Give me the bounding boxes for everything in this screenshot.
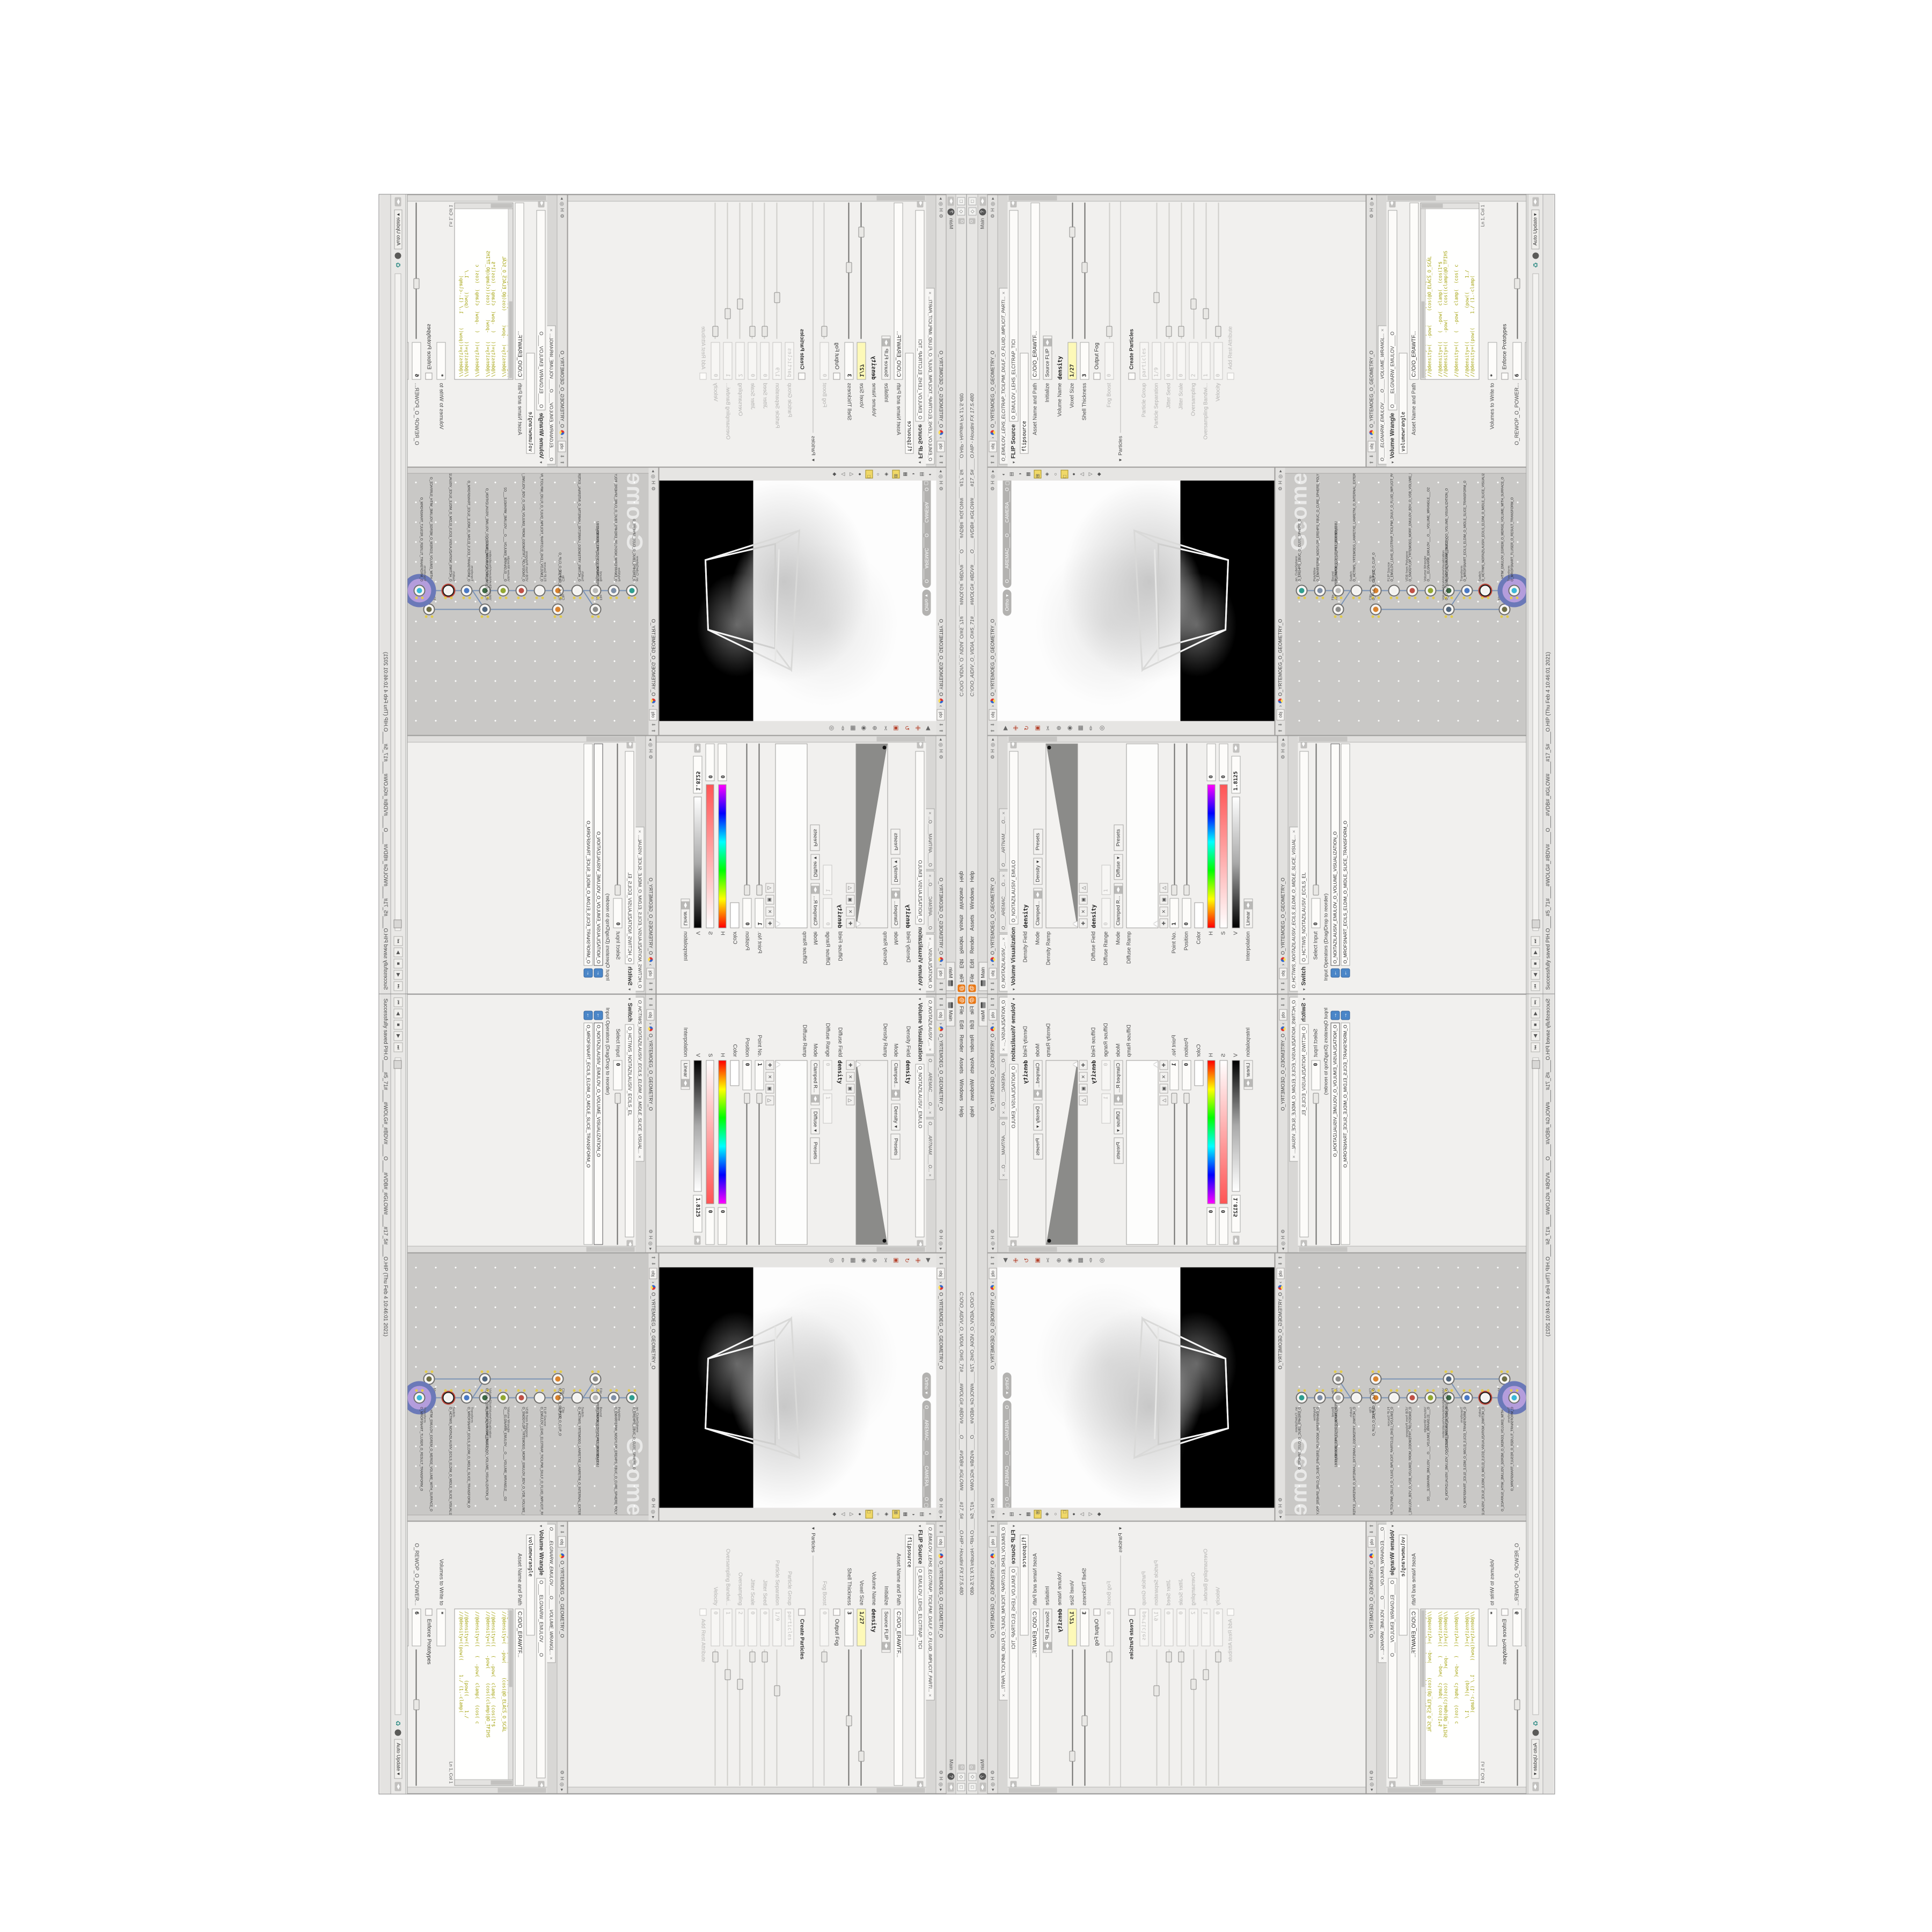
window-button[interactable]: □ xyxy=(957,197,965,205)
close-tab-icon[interactable]: ✕ xyxy=(1002,1111,1006,1114)
h-slider[interactable] xyxy=(718,784,726,928)
network-node[interactable] xyxy=(608,584,619,596)
nav-up-icon[interactable]: ⬆ xyxy=(559,460,565,464)
param-value[interactable]: density xyxy=(837,904,843,928)
context-chip[interactable]: obj xyxy=(989,968,997,979)
param-value[interactable]: density xyxy=(905,904,911,928)
houdini-h-icon[interactable]: H xyxy=(1368,208,1374,211)
param-checkbox[interactable] xyxy=(1128,372,1135,379)
param-slider[interactable] xyxy=(858,1649,865,1785)
node-flag-icon[interactable] xyxy=(480,1370,483,1373)
ramp-widget[interactable]: ✚✕▣△ xyxy=(846,1060,888,1245)
network-node[interactable] xyxy=(442,584,454,596)
close-tab-icon[interactable]: ✕ xyxy=(927,1111,931,1114)
node-flag-icon[interactable] xyxy=(462,596,465,599)
network-node[interactable] xyxy=(1296,1392,1307,1403)
nav-down-icon[interactable]: ⬇ xyxy=(1277,722,1283,727)
node-flag-icon[interactable] xyxy=(1408,1389,1410,1392)
menu-item-file[interactable]: File xyxy=(969,1006,975,1014)
node-flag-icon[interactable] xyxy=(450,596,452,599)
camera-pill[interactable]: O____AREMAC____O____CAMERA____O▢ xyxy=(1002,1400,1011,1507)
node-flag-icon[interactable] xyxy=(480,1389,483,1392)
magnifier-icon[interactable]: ◎ xyxy=(990,743,996,747)
pane-scroll-chip[interactable]: ◀▶ xyxy=(948,1782,954,1791)
playbar-transport[interactable]: ⏮◀■▶⏭ xyxy=(393,997,402,1052)
transport-button[interactable]: ■ xyxy=(393,958,402,968)
node-flag-icon[interactable] xyxy=(523,596,525,599)
node-path-field[interactable] xyxy=(625,751,634,964)
node-name-field[interactable] xyxy=(1399,1534,1407,1635)
nav-down-icon[interactable]: ⬇ xyxy=(990,1262,996,1266)
menu-item-help[interactable]: Help xyxy=(969,871,975,882)
param-field[interactable]: C:/O/O_ERAWTF... xyxy=(1409,202,1418,379)
node-flag-icon[interactable] xyxy=(462,1389,465,1392)
pane-scrollbar[interactable] xyxy=(656,736,926,742)
magnifier-icon[interactable]: ◎ xyxy=(559,1782,565,1787)
node-flag-icon[interactable] xyxy=(1450,1389,1453,1392)
node-flag-icon[interactable] xyxy=(591,615,594,618)
param-slider[interactable] xyxy=(1312,1093,1319,1245)
network-node[interactable] xyxy=(479,603,491,615)
code-hscrollbar[interactable] xyxy=(508,1609,513,1780)
close-tab-icon[interactable]: ✕ xyxy=(1002,811,1006,815)
frame-slider[interactable] xyxy=(395,1057,401,1715)
close-tab-icon[interactable]: ✕ xyxy=(1381,328,1385,332)
nav-down-icon[interactable]: ⬇ xyxy=(559,454,565,458)
node-flag-icon[interactable] xyxy=(535,1389,538,1392)
pane-scrollbar[interactable] xyxy=(1007,195,1365,201)
magnifier-icon[interactable]: ◎ xyxy=(938,1782,944,1787)
ramp-handle[interactable] xyxy=(856,1062,860,1067)
param-field[interactable]: 0 xyxy=(613,1060,622,1090)
node-flag-icon[interactable] xyxy=(1426,1389,1429,1392)
cook-mode-icon[interactable] xyxy=(395,1729,401,1736)
transport-button[interactable]: ⏮ xyxy=(393,997,402,1007)
pane-tab[interactable]: O____AREMAC____O...✕ xyxy=(926,1055,934,1117)
node-flag-icon[interactable] xyxy=(579,596,581,599)
desktop-tab-main[interactable]: Main xyxy=(947,997,955,1026)
menu-item-assets[interactable]: Assets xyxy=(969,914,975,931)
reorder-left-icon[interactable]: ← xyxy=(1341,968,1350,977)
node-name-field[interactable] xyxy=(526,353,535,453)
viewport-canvas[interactable]: Ortho▾O____AREMAC____O____CAMERA____O▢ xyxy=(659,480,936,721)
desktop-tab-main[interactable]: Main xyxy=(978,997,987,1026)
context-chip[interactable]: obj xyxy=(937,709,945,720)
node-flag-icon[interactable] xyxy=(1358,596,1360,599)
op-tool-icon[interactable]: ⊕ xyxy=(871,1257,878,1262)
node-flag-icon[interactable] xyxy=(1389,596,1392,599)
houdini-h-icon[interactable]: H xyxy=(938,749,943,752)
param-checkbox[interactable] xyxy=(1128,1608,1135,1615)
color-swatch[interactable] xyxy=(1194,1060,1203,1086)
param-slider[interactable] xyxy=(743,743,750,895)
pane-tab[interactable]: O_HCTIWS_NOITAZILAUSIV_ECILS_ELDIM_O_MID… xyxy=(1289,826,1298,991)
network-node[interactable] xyxy=(1332,584,1344,596)
param-value[interactable]: density xyxy=(905,1060,911,1084)
close-tab-icon[interactable]: ✕ xyxy=(1292,1155,1296,1158)
section-separator[interactable]: ▾Particles xyxy=(1117,200,1123,461)
display-tool-icon[interactable]: ⊞ xyxy=(1034,470,1041,478)
node-path-field[interactable] xyxy=(537,1578,546,1778)
transport-button[interactable]: ⏭ xyxy=(1531,936,1540,946)
network-node[interactable] xyxy=(413,584,425,596)
ramp-marker-button[interactable]: △ xyxy=(846,1095,854,1105)
houdini-h-icon[interactable]: H xyxy=(938,1504,943,1507)
slider-handle[interactable] xyxy=(858,226,864,237)
nav-down-icon[interactable]: ⬇ xyxy=(648,981,654,985)
param-slider[interactable] xyxy=(756,1093,763,1245)
op-tool-icon[interactable]: ✏ xyxy=(1087,725,1094,730)
collapse-icon[interactable]: ▾ xyxy=(1301,998,1306,1000)
gear-icon[interactable]: ⚙ xyxy=(1280,755,1286,759)
slider-handle[interactable] xyxy=(1514,278,1520,289)
input-operator-value[interactable]: O_NOITAZILAUSIV_EMULOV_O_VOLUME_VISUALIZ… xyxy=(1330,1022,1340,1245)
network-node[interactable] xyxy=(1350,584,1362,596)
context-chip[interactable]: obj xyxy=(1279,1009,1287,1020)
node-flag-icon[interactable] xyxy=(415,1389,418,1392)
network-node[interactable] xyxy=(533,1392,545,1403)
slider-handle[interactable] xyxy=(413,1699,419,1710)
node-flag-icon[interactable] xyxy=(430,1370,433,1373)
network-node[interactable] xyxy=(479,1373,491,1385)
node-flag-icon[interactable] xyxy=(1395,596,1398,599)
gear-icon[interactable]: ⚙ xyxy=(990,1770,996,1774)
op-tool-icon[interactable]: ✙ xyxy=(914,725,921,730)
context-chip[interactable]: obj xyxy=(1367,1536,1375,1547)
node-flag-icon[interactable] xyxy=(1468,596,1471,599)
pane-tab[interactable]: O____ELGNARW_EMULOV____O____VOLUME_WRANG… xyxy=(1378,325,1386,464)
context-chip[interactable]: obj xyxy=(649,709,657,720)
node-flag-icon[interactable] xyxy=(1352,596,1355,599)
add-point-button[interactable]: ✚ xyxy=(1159,1060,1168,1070)
reorder-left-icon[interactable]: ← xyxy=(594,1011,603,1020)
op-tool-icon[interactable]: ◉ xyxy=(1066,725,1073,730)
display-tool-icon[interactable]: ▤ xyxy=(1008,1512,1014,1517)
param-value[interactable]: density xyxy=(1091,1060,1097,1084)
display-tool-icon[interactable]: □ xyxy=(865,470,873,478)
display-tool-icon[interactable]: ◐ xyxy=(1000,1512,1006,1515)
pane-tab[interactable]: O____ELGNARW_EMULOV____O____VOLUME_WRANG… xyxy=(547,325,555,464)
context-chip[interactable]: obj xyxy=(1279,968,1287,979)
network-node[interactable] xyxy=(515,584,527,596)
display-tool-icon[interactable]: ▦ xyxy=(1025,1512,1031,1517)
magnifier-icon[interactable]: ◎ xyxy=(1277,1510,1283,1514)
gear-icon[interactable]: ⚙ xyxy=(1368,1770,1374,1774)
code-hscrollbar[interactable] xyxy=(508,208,513,379)
node-flag-icon[interactable] xyxy=(559,615,562,618)
param-slider[interactable] xyxy=(1069,1649,1075,1785)
collapse-icon[interactable]: ▾ xyxy=(1390,1525,1395,1527)
play-icon[interactable]: ▸ xyxy=(1280,738,1286,741)
node-path-field[interactable] xyxy=(1388,1578,1397,1778)
close-tab-icon[interactable]: ✕ xyxy=(548,1656,552,1659)
pane-scrollbar[interactable] xyxy=(1298,1246,1526,1252)
node-flag-icon[interactable] xyxy=(415,596,418,599)
param-slider[interactable] xyxy=(743,1093,750,1245)
magnifier-icon[interactable]: ◎ xyxy=(938,1241,944,1246)
ramp-point[interactable] xyxy=(1047,1239,1051,1242)
frame-slider-handle[interactable] xyxy=(1532,1060,1540,1069)
menu-item-render[interactable]: Render xyxy=(969,936,975,954)
context-chip[interactable]: obj xyxy=(989,1268,997,1279)
param-field[interactable]: 6 xyxy=(1512,342,1521,379)
window-buttons[interactable]: ◇□ xyxy=(968,1773,976,1791)
magnifier-icon[interactable]: ◎ xyxy=(1277,474,1283,479)
node-flag-icon[interactable] xyxy=(1444,615,1447,618)
param-slider[interactable] xyxy=(1183,743,1190,895)
ramp-target-dropdown[interactable]: Density▾ xyxy=(891,1103,900,1130)
v-slider[interactable] xyxy=(693,1060,701,1191)
display-tool-icon[interactable]: ⊞ xyxy=(892,1510,899,1518)
add-point-button[interactable]: ✚ xyxy=(1079,1060,1087,1070)
help-icon[interactable]: ? xyxy=(947,208,954,215)
nav-up-icon[interactable]: ⬆ xyxy=(559,1524,565,1528)
op-tool-icon[interactable]: ▶ xyxy=(1001,726,1008,730)
houdini-h-icon[interactable]: H xyxy=(1277,1504,1283,1507)
menu-item-windows[interactable]: Windows xyxy=(969,887,975,909)
color-swatch[interactable] xyxy=(730,1060,739,1086)
h-slider[interactable] xyxy=(718,1060,726,1204)
param-dropdown[interactable]: Source FLIP◀▶ xyxy=(881,1608,890,1652)
network-scrollbar[interactable] xyxy=(407,467,648,473)
param-slider[interactable] xyxy=(413,202,420,339)
magnifier-icon[interactable]: ◎ xyxy=(990,474,996,479)
display-tool-icon[interactable]: ○ xyxy=(1052,1512,1058,1515)
network-node[interactable] xyxy=(460,1392,472,1403)
node-name-field[interactable] xyxy=(905,353,913,453)
display-tool-icon[interactable]: ◐ xyxy=(1000,472,1006,475)
param-slider[interactable] xyxy=(1069,202,1075,339)
close-tab-icon[interactable]: ✕ xyxy=(548,328,552,332)
op-tool-icon[interactable]: ⊕ xyxy=(1055,1257,1062,1262)
ramp-box-button[interactable]: ▣ xyxy=(846,895,854,904)
context-chip[interactable]: obj xyxy=(649,1268,657,1279)
network-node[interactable] xyxy=(1314,584,1326,596)
param-field[interactable]: C:/O/O_ERAWTF... xyxy=(1409,1608,1418,1785)
node-flag-icon[interactable] xyxy=(499,596,501,599)
menu-item-help[interactable]: Help xyxy=(958,871,964,882)
node-name-field[interactable] xyxy=(905,1534,913,1635)
houdini-h-icon[interactable]: H xyxy=(648,749,653,752)
collapse-icon[interactable]: ▾ xyxy=(1301,988,1306,990)
display-tool-icon[interactable]: ▤ xyxy=(919,472,925,477)
param-field[interactable]: 0 xyxy=(742,1060,751,1090)
magnifier-icon[interactable]: ◎ xyxy=(648,743,654,747)
gear-icon[interactable]: ⚙ xyxy=(938,214,944,218)
pane-scrollbar[interactable] xyxy=(568,195,926,201)
gear-icon[interactable]: ⚙ xyxy=(990,1229,996,1233)
node-flag-icon[interactable] xyxy=(1516,1389,1518,1392)
slider-handle[interactable] xyxy=(1069,1751,1075,1761)
nav-down-icon[interactable]: ⬇ xyxy=(1368,454,1374,458)
ramp-widget[interactable]: ✚✕▣△ xyxy=(1045,1060,1087,1245)
network-node[interactable] xyxy=(626,584,638,596)
network-node[interactable] xyxy=(1406,1392,1418,1403)
pane-scroll-chip[interactable]: ◀▶ xyxy=(948,196,954,206)
node-flag-icon[interactable] xyxy=(504,596,507,599)
display-tool-icon[interactable]: ◆ xyxy=(1096,472,1102,476)
op-tool-icon[interactable]: ✏ xyxy=(839,1257,846,1262)
ramp-marker-button[interactable]: △ xyxy=(1159,1095,1168,1105)
param-field[interactable]: * xyxy=(436,342,445,379)
pane-tab[interactable]: O____AREMAC____O...✕ xyxy=(999,1055,1007,1117)
gear-icon[interactable]: ⚙ xyxy=(559,1770,565,1774)
network-node[interactable] xyxy=(589,1392,601,1403)
s-slider[interactable] xyxy=(706,784,714,928)
ramp-widget[interactable]: ✚✕▣△ xyxy=(1126,743,1168,928)
param-field[interactable]: 6 xyxy=(412,342,421,379)
param-field[interactable]: 32 xyxy=(407,1608,408,1646)
param-checkbox[interactable] xyxy=(798,372,805,379)
transport-button[interactable]: ■ xyxy=(1531,958,1540,968)
window-buttons[interactable]: ◇□ xyxy=(968,197,976,215)
presets-button[interactable]: Presets xyxy=(891,829,901,854)
node-name-field[interactable] xyxy=(1020,353,1028,453)
collapse-icon[interactable]: ▾ xyxy=(539,1525,544,1527)
network-node[interactable] xyxy=(589,1373,601,1385)
node-flag-icon[interactable] xyxy=(615,596,618,599)
context-chip[interactable]: obj xyxy=(558,441,566,452)
mode-dropdown[interactable]: Clamped R...◀▶ xyxy=(1114,883,1123,928)
section-separator[interactable]: ▾Particles xyxy=(1117,1527,1123,1788)
menu-item-edit[interactable]: Edit xyxy=(969,1020,975,1029)
param-value[interactable]: density xyxy=(1091,904,1097,928)
hsv-value-field[interactable]: 1.8125 xyxy=(693,1195,702,1232)
collapse-icon[interactable]: ▾ xyxy=(918,998,923,1000)
transport-button[interactable]: ▶ xyxy=(1531,947,1540,957)
code-vscrollbar[interactable] xyxy=(1421,203,1479,209)
node-flag-icon[interactable] xyxy=(1481,596,1483,599)
display-tool-icon[interactable]: ◐ xyxy=(927,1512,933,1515)
param-slider[interactable] xyxy=(1513,202,1520,339)
window-buttons[interactable]: ◇□ xyxy=(957,197,965,215)
gear-icon[interactable]: ⚙ xyxy=(648,1229,654,1233)
pane-scrollbar[interactable] xyxy=(568,1787,926,1793)
menu-item-file[interactable]: File xyxy=(969,974,975,982)
param-field[interactable]: C:/O/O_ERAWTF... xyxy=(515,1608,524,1785)
close-tab-icon[interactable]: ✕ xyxy=(1002,874,1006,877)
node-flag-icon[interactable] xyxy=(468,596,471,599)
param-slider[interactable] xyxy=(1513,1649,1520,1785)
play-icon[interactable]: ▸ xyxy=(990,1247,996,1250)
ramp-point[interactable] xyxy=(1047,745,1051,749)
network-node[interactable] xyxy=(589,584,601,596)
pane-scrollbar[interactable] xyxy=(656,1246,926,1252)
mode-dropdown[interactable]: Clamped R...◀▶ xyxy=(810,883,819,928)
h-slider[interactable] xyxy=(1207,1060,1215,1204)
gear-icon[interactable]: ⚙ xyxy=(938,1229,944,1233)
op-tool-icon[interactable]: ▦ xyxy=(850,725,857,730)
node-flag-icon[interactable] xyxy=(1500,1370,1503,1373)
pane-tab[interactable]: O____ELGNARW_EMULOV____O____VOLUME_WRANG… xyxy=(547,1524,555,1663)
presets-button[interactable]: Presets xyxy=(810,1137,820,1163)
houdini-h-icon[interactable]: H xyxy=(938,1776,943,1780)
network-node[interactable] xyxy=(460,584,472,596)
collapse-icon[interactable]: ▾ xyxy=(539,461,544,463)
param-field[interactable]: 1/27 xyxy=(857,342,866,379)
hsv-value-field[interactable]: 0 xyxy=(1219,743,1228,781)
ramp-box-button[interactable]: ▣ xyxy=(765,895,774,904)
node-flag-icon[interactable] xyxy=(1303,596,1306,599)
menu-item-help[interactable]: Help xyxy=(969,1106,975,1117)
frame-slider-handle[interactable] xyxy=(1532,919,1540,928)
op-tool-icon[interactable]: ◉ xyxy=(860,1257,867,1263)
diffuse-ramp[interactable] xyxy=(775,1060,807,1245)
param-field[interactable]: 0 xyxy=(742,898,751,928)
display-tool-icon[interactable]: ◑ xyxy=(1017,1512,1022,1515)
context-chip[interactable]: obj xyxy=(1276,1268,1284,1279)
mode-dropdown[interactable]: Clamped...◀▶ xyxy=(891,1060,900,1100)
node-flag-icon[interactable] xyxy=(444,1389,447,1392)
node-flag-icon[interactable] xyxy=(480,596,483,599)
vex-code-editor[interactable]: //@density=( -pow( clamp( (cos(@O_ELACS_… xyxy=(1420,202,1479,379)
display-tool-icon[interactable]: △ xyxy=(848,472,854,476)
display-tool-icon[interactable]: ● xyxy=(1071,1512,1076,1515)
node-flag-icon[interactable] xyxy=(486,1370,489,1373)
display-tool-icon[interactable]: ▤ xyxy=(1008,472,1014,477)
node-flag-icon[interactable] xyxy=(1352,1389,1355,1392)
ramp-box-button[interactable]: ▣ xyxy=(1079,895,1087,904)
param-field[interactable]: 32 xyxy=(407,342,408,379)
nav-up-icon[interactable]: ⬆ xyxy=(990,1255,996,1260)
magnifier-icon[interactable]: ◎ xyxy=(1280,1241,1286,1246)
display-tool-icon[interactable]: ◆ xyxy=(831,1512,837,1516)
menu-bar[interactable]: FileEditRenderAssetsWindowsHelp xyxy=(969,1006,975,1117)
op-tool-icon[interactable]: ◎ xyxy=(1098,1257,1105,1263)
nav-up-icon[interactable]: ⬆ xyxy=(1368,460,1374,464)
op-tool-icon[interactable]: ⊕ xyxy=(871,725,878,730)
param-value[interactable]: density xyxy=(837,1060,843,1084)
network-node[interactable] xyxy=(608,1392,619,1403)
param-field[interactable]: 6 xyxy=(1512,1608,1521,1646)
ortho-pill[interactable]: Ortho▾ xyxy=(922,589,931,616)
gear-icon[interactable]: ⚙ xyxy=(938,1497,944,1502)
display-tool-icon[interactable]: ▦ xyxy=(902,472,908,477)
houdini-h-icon[interactable]: H xyxy=(938,1235,943,1239)
houdini-h-icon[interactable]: H xyxy=(990,749,995,752)
param-dropdown[interactable]: Source FLIP◀▶ xyxy=(1043,335,1052,379)
context-chip[interactable]: obj xyxy=(1276,709,1284,720)
slider-handle[interactable] xyxy=(756,1093,762,1103)
presets-button[interactable]: Presets xyxy=(1033,1133,1043,1159)
input-operator-value[interactable]: O_MROFSNART_ECILS_ELDIM_O_MIDLE_SLICE_TR… xyxy=(1341,1022,1350,1245)
nav-up-icon[interactable]: ⬆ xyxy=(990,987,996,991)
node-flag-icon[interactable] xyxy=(1340,615,1342,618)
param-field[interactable]: 1 xyxy=(755,898,764,928)
param-checkbox[interactable] xyxy=(1093,372,1100,379)
pane-scrollbar[interactable] xyxy=(407,1246,635,1252)
frame-slider[interactable] xyxy=(395,273,401,931)
node-path-field[interactable] xyxy=(916,751,925,924)
node-flag-icon[interactable] xyxy=(1450,596,1453,599)
context-chip[interactable]: obj xyxy=(989,709,997,720)
network-canvas[interactable]: Geomean_CubeSphereO_EREHPS_EBUC_O_CUBE_S… xyxy=(407,467,648,735)
gear-icon[interactable]: ⚙ xyxy=(650,486,656,491)
collapse-icon[interactable]: ▾ xyxy=(627,988,632,990)
density-ramp[interactable] xyxy=(855,1060,888,1245)
nav-down-icon[interactable]: ⬇ xyxy=(990,1530,996,1534)
reorder-left-icon[interactable]: ← xyxy=(1330,968,1340,977)
transport-button[interactable]: ▶ xyxy=(1531,1031,1540,1041)
close-tab-icon[interactable]: ✕ xyxy=(1002,291,1006,294)
camera-pill[interactable]: O____AREMAC____O____CAMERA____O▢ xyxy=(922,480,931,588)
param-value[interactable]: density xyxy=(1057,1608,1063,1632)
nav-down-icon[interactable]: ⬇ xyxy=(1280,1003,1286,1007)
hsv-value-field[interactable]: 1.8125 xyxy=(693,756,702,793)
close-tab-icon[interactable]: ✕ xyxy=(1002,1048,1006,1051)
param-slider[interactable] xyxy=(413,1649,420,1785)
mode-dropdown[interactable]: Clamped...◀▶ xyxy=(1033,1060,1042,1100)
